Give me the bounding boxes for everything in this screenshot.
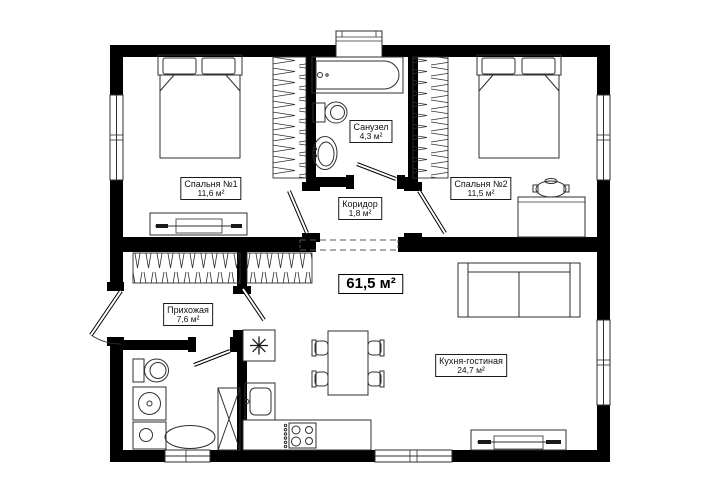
washing-machine xyxy=(133,387,166,420)
window-bedroom2 xyxy=(596,95,611,180)
dresser-bedroom1 xyxy=(150,213,247,235)
linen-cabinet xyxy=(218,388,240,450)
bed-bedroom2 xyxy=(477,55,561,158)
window-bathroom-top xyxy=(336,31,382,57)
hallway-closet xyxy=(133,253,240,283)
tv-stand xyxy=(471,430,566,450)
desk-chair xyxy=(533,179,569,198)
room-label-bedroom2: Спальня №2 11,5 м² xyxy=(450,177,511,200)
bed-bedroom1 xyxy=(158,55,242,158)
kitchen-sink xyxy=(245,383,275,420)
room-label-bathroom: Санузел 4,3 м² xyxy=(349,120,392,143)
desk-bedroom2 xyxy=(518,197,585,237)
bathtub xyxy=(312,57,403,93)
entrance-door xyxy=(91,282,124,346)
sofa xyxy=(458,263,580,317)
bathtub-2 xyxy=(165,426,215,449)
total-area-label: 61,5 м² xyxy=(338,274,403,294)
window-kitchen xyxy=(375,449,452,463)
floor-plan-drawing xyxy=(0,0,710,502)
dining-table xyxy=(328,331,368,395)
room-area: 11,5 м² xyxy=(454,189,507,199)
door-bedroom2 xyxy=(419,191,445,233)
room-area: 7,6 м² xyxy=(167,315,209,325)
floor-plan: Спальня №1 11,6 м² Санузел 4,3 м² Спальн… xyxy=(0,0,710,502)
room-label-bedroom1: Спальня №1 11,6 м² xyxy=(180,177,241,200)
door-bathroom xyxy=(357,164,396,179)
wardrobe-bedroom2 xyxy=(413,57,448,178)
room-label-kitchen-living: Кухня-гостиная 24,7 м² xyxy=(435,354,507,377)
room-label-hallway: Прихожая 7,6 м² xyxy=(163,303,213,326)
kitchen-counter-bottom xyxy=(243,420,371,450)
toilet-2 xyxy=(133,359,169,382)
room-label-corridor: Коридор 1,8 м² xyxy=(338,197,382,220)
wardrobe-bedroom1 xyxy=(273,57,306,178)
door-hallway-kitchen xyxy=(243,289,264,320)
window-bedroom1 xyxy=(109,95,124,180)
window-living xyxy=(596,320,611,405)
door-bathroom2 xyxy=(194,351,230,365)
room-area: 24,7 м² xyxy=(439,366,503,376)
toilet xyxy=(313,102,347,123)
window-bathroom2 xyxy=(165,449,210,463)
door-bedroom1 xyxy=(289,191,307,233)
asterisk-symbol xyxy=(250,337,268,355)
room-area: 4,3 м² xyxy=(353,132,388,142)
laundry-cabinet xyxy=(133,422,166,449)
room-area: 1,8 м² xyxy=(342,209,378,219)
bathroom-sink xyxy=(313,137,337,170)
room-area: 11,6 м² xyxy=(184,189,237,199)
second-closet xyxy=(247,253,312,283)
